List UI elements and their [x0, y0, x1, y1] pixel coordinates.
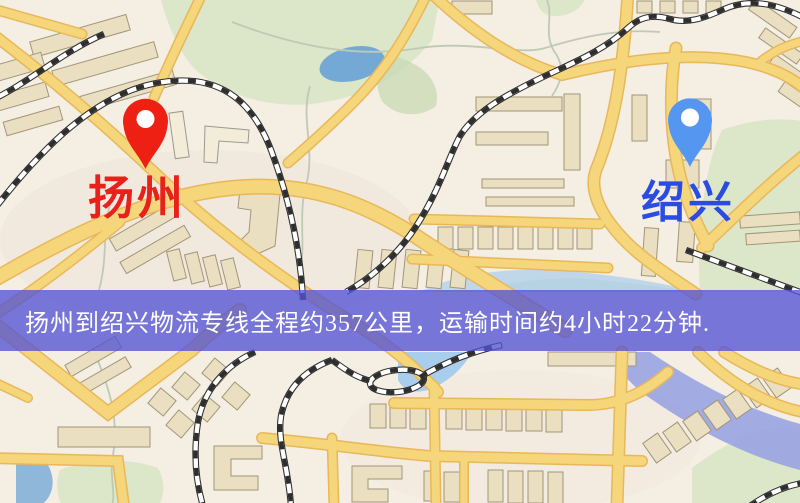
destination-pin-hole [681, 109, 699, 127]
route-info-text: 扬州到绍兴物流专线全程约357公里，运输时间约4小时22分钟. [0, 290, 800, 351]
origin-pin-hole [137, 110, 155, 128]
destination-city-label: 绍兴 [641, 181, 735, 225]
map-canvas[interactable]: 扬州 绍兴 扬州到绍兴物流专线全程约357公里，运输时间约4小时22分钟. [0, 0, 800, 503]
origin-city-label: 扬州 [88, 176, 186, 222]
route-info-banner: 扬州到绍兴物流专线全程约357公里，运输时间约4小时22分钟. [0, 290, 800, 351]
map-graphic [0, 0, 800, 503]
